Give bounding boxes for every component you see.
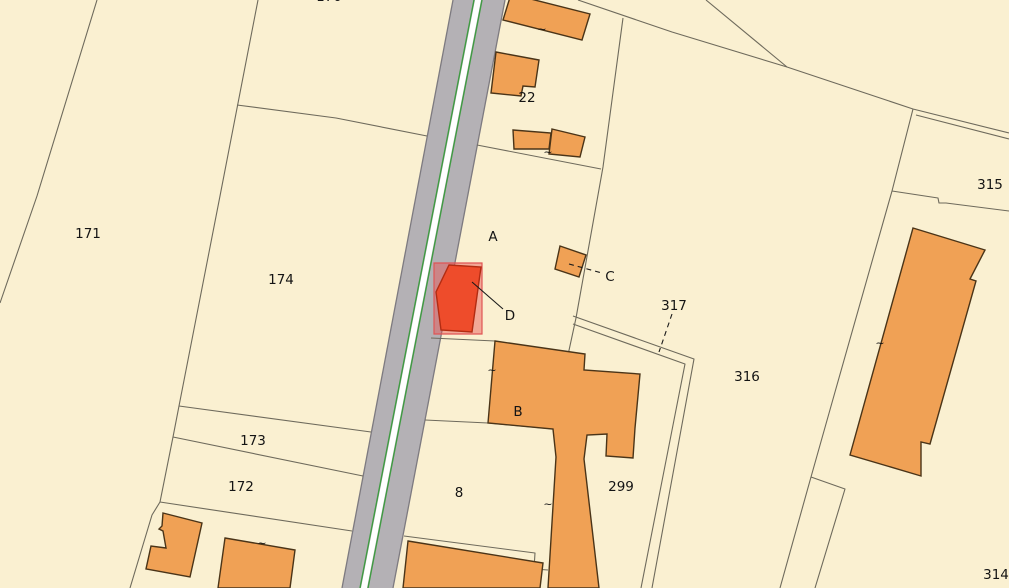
- parcel-label-172: 172: [228, 479, 254, 495]
- parcel-label-314: 314: [983, 567, 1009, 583]
- marker-label-c: C: [605, 269, 614, 285]
- map-canvas[interactable]: ~~~~~~171174173172822299316317315314170A…: [0, 0, 1009, 588]
- parcel-label-174: 174: [268, 272, 294, 288]
- parcel-label-173: 173: [240, 433, 266, 449]
- building-edge-tick-5: ~: [257, 537, 266, 550]
- parcel-label-8: 8: [455, 485, 464, 501]
- building-edge-tick-2: ~: [543, 146, 552, 159]
- marker-label-a: A: [488, 229, 498, 245]
- cadastral-map-viewport[interactable]: ~~~~~~171174173172822299316317315314170A…: [0, 0, 1009, 588]
- building-edge-tick-4: ~: [543, 498, 552, 511]
- parcel-label-top-partial: 170: [316, 0, 342, 5]
- marker-label-d: D: [505, 308, 515, 324]
- parcel-label-317: 317: [661, 298, 687, 314]
- building-edge-tick-1: ~: [537, 23, 546, 36]
- parcel-label-171: 171: [75, 226, 101, 242]
- parcel-label-315: 315: [977, 177, 1003, 193]
- marker-label-b: B: [513, 404, 522, 420]
- parcel-label-316: 316: [734, 369, 760, 385]
- parcel-label-299: 299: [608, 479, 634, 495]
- building-edge-tick-6: ~: [875, 337, 884, 350]
- parcel-label-22: 22: [518, 90, 535, 106]
- building-edge-tick-3: ~: [487, 364, 496, 377]
